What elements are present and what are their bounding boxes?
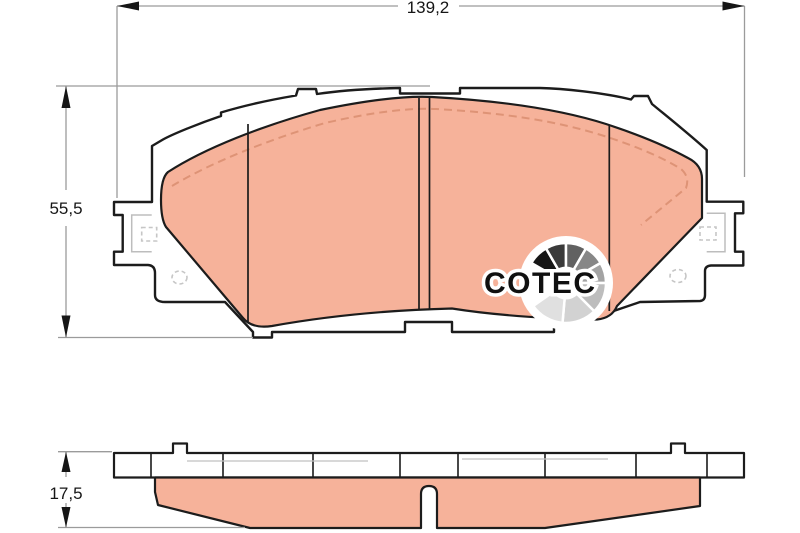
drawing-canvas: COTEC 139,2 55,5 17,5 <box>0 0 800 533</box>
thickness-arrow-bottom <box>62 507 71 528</box>
side-view <box>114 444 744 529</box>
height-arrow-bottom <box>62 316 71 338</box>
width-label: 139,2 <box>407 0 450 17</box>
brake-pad-technical-drawing: COTEC 139,2 55,5 17,5 <box>0 0 800 533</box>
width-arrow-left <box>117 2 139 11</box>
width-arrow-right <box>723 2 745 11</box>
height-label: 55,5 <box>49 199 82 218</box>
height-arrow-top <box>62 86 71 108</box>
side-friction-material <box>155 478 700 529</box>
thickness-arrow-top <box>62 452 71 472</box>
top-view: COTEC <box>114 88 743 338</box>
cotec-logo-text: COTEC <box>484 267 597 300</box>
thickness-label: 17,5 <box>49 484 82 503</box>
